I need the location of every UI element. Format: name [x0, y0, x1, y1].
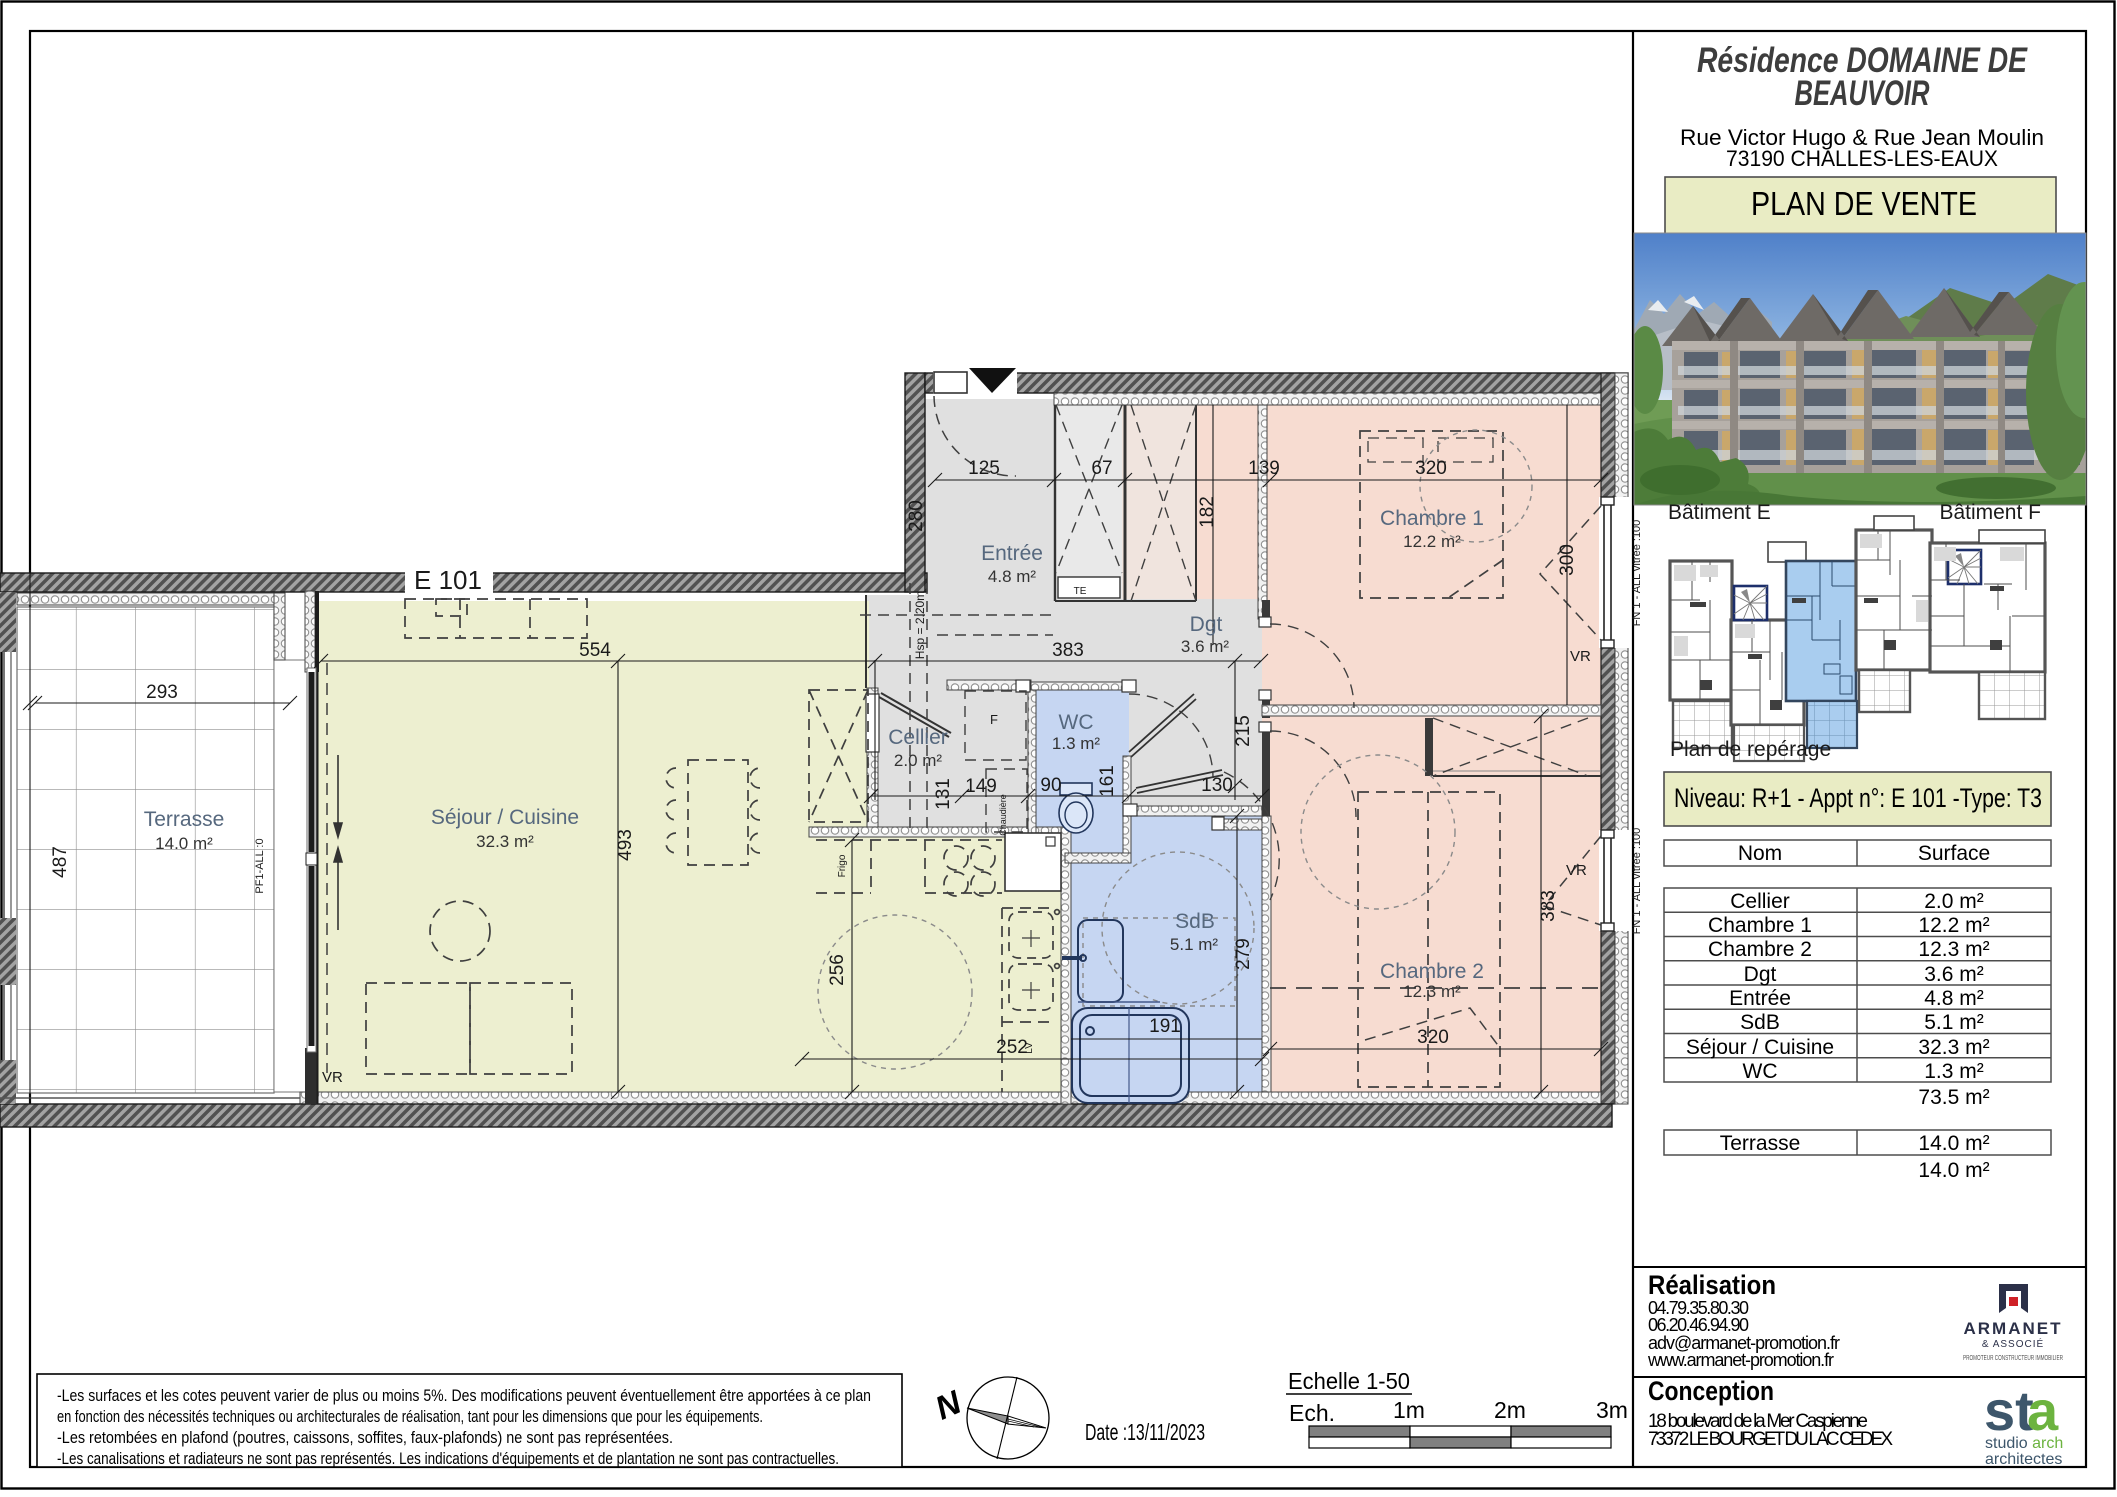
svg-text:architectes: architectes [1985, 1451, 2062, 1468]
svg-text:studio arch: studio arch [1985, 1435, 2063, 1452]
svg-text:WC: WC [1743, 1060, 1778, 1083]
svg-text:161: 161 [1097, 765, 1118, 797]
svg-text:F: F [990, 712, 998, 727]
svg-text:130: 130 [1201, 775, 1233, 796]
svg-text:VR: VR [322, 1069, 343, 1086]
svg-text:300: 300 [1557, 544, 1578, 576]
svg-text:-Les surfaces et les cotes peu: -Les surfaces et les cotes peuvent varie… [57, 1386, 871, 1405]
svg-text:Frigo: Frigo [837, 854, 848, 877]
svg-text:4.8 m²: 4.8 m² [988, 567, 1037, 586]
svg-text:Chambre 1: Chambre 1 [1380, 507, 1484, 530]
svg-text:32.3 m²: 32.3 m² [1918, 1036, 1989, 1059]
svg-text:Cellier: Cellier [1730, 890, 1790, 913]
svg-text:383: 383 [1052, 640, 1084, 661]
svg-text:320: 320 [1415, 458, 1447, 479]
svg-text:12.3 m²: 12.3 m² [1918, 938, 1989, 961]
svg-text:1.3 m²: 1.3 m² [1924, 1060, 1984, 1083]
svg-text:280: 280 [906, 500, 927, 532]
svg-text:VR: VR [1570, 648, 1591, 665]
svg-text:Hsp = 2.20m: Hsp = 2.20m [913, 591, 927, 659]
svg-text:Conception: Conception [1648, 1376, 1774, 1406]
svg-text:14.0 m²: 14.0 m² [1918, 1159, 1989, 1182]
svg-text:73190 CHALLES-LES-EAUX: 73190 CHALLES-LES-EAUX [1726, 146, 1998, 171]
svg-text:Terrasse: Terrasse [1720, 1132, 1801, 1155]
svg-text:VR: VR [1566, 862, 1587, 879]
svg-text:5.1 m²: 5.1 m² [1170, 935, 1219, 954]
svg-text:FN 1 - ALL vitrée :100: FN 1 - ALL vitrée :100 [1631, 828, 1643, 935]
svg-text:554: 554 [579, 640, 611, 661]
svg-text:Entrée: Entrée [981, 542, 1043, 565]
svg-text:Dgt: Dgt [1190, 613, 1223, 636]
svg-text:149: 149 [965, 776, 997, 797]
svg-text:12.2 m²: 12.2 m² [1403, 532, 1461, 551]
svg-text:1.3 m²: 1.3 m² [1052, 734, 1101, 753]
svg-text:493: 493 [615, 829, 636, 861]
svg-text:14.0 m²: 14.0 m² [1918, 1132, 1989, 1155]
svg-text:215: 215 [1233, 715, 1254, 747]
svg-text:67: 67 [1091, 458, 1112, 479]
svg-text:Entrée: Entrée [1729, 987, 1791, 1010]
svg-text:1m: 1m [1393, 1397, 1425, 1423]
svg-text:12.3 m²: 12.3 m² [1403, 982, 1461, 1001]
svg-text:Date :13/11/2023: Date :13/11/2023 [1085, 1419, 1205, 1445]
svg-text:en fonction des nécessités tec: en fonction des nécessités techniques ou… [57, 1407, 763, 1426]
svg-text:Cellier: Cellier [888, 726, 948, 749]
svg-text:Chambre 1: Chambre 1 [1708, 914, 1812, 937]
svg-text:125: 125 [968, 458, 1000, 479]
svg-text:32.3 m²: 32.3 m² [476, 832, 534, 851]
svg-text:LV: LV [1024, 1042, 1035, 1054]
svg-text:2m: 2m [1494, 1397, 1526, 1423]
svg-text:Ech.: Ech. [1289, 1400, 1335, 1426]
svg-text:Dgt: Dgt [1744, 963, 1777, 986]
svg-text:-Les retombées en plafond (pou: -Les retombées en plafond (poutres, cais… [57, 1428, 673, 1447]
svg-text:3m: 3m [1596, 1397, 1628, 1423]
svg-text:Echelle 1-50: Echelle 1-50 [1288, 1368, 1410, 1394]
svg-text:12.2 m²: 12.2 m² [1918, 914, 1989, 937]
svg-text:279: 279 [1233, 938, 1254, 970]
svg-text:PROMOTEUR CONSTRUCTEUR IMMOBIL: PROMOTEUR CONSTRUCTEUR IMMOBILIER [1963, 1355, 2063, 1362]
svg-text:Niveau: R+1 - Appt n°: E 101: Niveau: R+1 - Appt n°: E 101 -Type: T3 [1674, 783, 2042, 813]
svg-text:Plan de repérage: Plan de repérage [1670, 738, 1831, 761]
svg-text:2.0 m²: 2.0 m² [894, 751, 943, 770]
svg-text:320: 320 [1417, 1027, 1449, 1048]
svg-text:Bâtiment F: Bâtiment F [1939, 501, 2041, 524]
svg-text:SdB: SdB [1175, 910, 1215, 933]
svg-text:73372 LE BOURGET DU LAC CEDEX: 73372 LE BOURGET DU LAC CEDEX [1648, 1429, 1893, 1450]
svg-text:N: N [930, 1383, 968, 1427]
svg-text:a: a [2027, 1379, 2059, 1442]
svg-text:Nom: Nom [1738, 842, 1782, 865]
svg-text:5.1 m²: 5.1 m² [1924, 1011, 1984, 1034]
svg-text:www.armanet-promotion.fr: www.armanet-promotion.fr [1647, 1350, 1834, 1370]
svg-text:90: 90 [1040, 775, 1061, 796]
svg-text:Chaudière: Chaudière [998, 794, 1008, 836]
svg-text:191: 191 [1149, 1016, 1181, 1037]
svg-text:73.5 m²: 73.5 m² [1918, 1086, 1989, 1109]
svg-text:Chambre 2: Chambre 2 [1708, 938, 1812, 961]
svg-text:-Les canalisations et radiateu: -Les canalisations et radiateurs ne sont… [57, 1449, 839, 1468]
svg-text:TE: TE [1074, 586, 1087, 597]
svg-text:ARMANET: ARMANET [1964, 1319, 2063, 1338]
svg-text:BEAUVOIR: BEAUVOIR [1795, 74, 1931, 113]
svg-text:2.0 m²: 2.0 m² [1924, 890, 1984, 913]
svg-text:293: 293 [146, 682, 178, 703]
svg-text:383: 383 [1538, 890, 1559, 922]
svg-text:PF1-ALL :0: PF1-ALL :0 [254, 838, 266, 893]
svg-text:Terrasse: Terrasse [144, 808, 225, 831]
svg-text:E 101: E 101 [414, 565, 482, 595]
svg-text:Bâtiment E: Bâtiment E [1668, 501, 1771, 524]
svg-text:4.8 m²: 4.8 m² [1924, 987, 1984, 1010]
svg-text:Surface: Surface [1918, 842, 1990, 865]
svg-text:SdB: SdB [1740, 1011, 1780, 1034]
svg-text:3.6 m²: 3.6 m² [1181, 637, 1230, 656]
svg-text:3.6 m²: 3.6 m² [1924, 963, 1984, 986]
svg-text:131: 131 [933, 778, 954, 810]
svg-text:FN 1 - ALL vitrée :100: FN 1 - ALL vitrée :100 [1631, 520, 1643, 627]
svg-text:139: 139 [1248, 458, 1280, 479]
svg-text:Séjour / Cuisine: Séjour / Cuisine [1686, 1036, 1834, 1059]
svg-text:182: 182 [1197, 496, 1218, 528]
svg-text:487: 487 [50, 846, 71, 878]
svg-text:14.0 m²: 14.0 m² [155, 834, 213, 853]
svg-text:PLAN DE VENTE: PLAN DE VENTE [1751, 185, 1977, 222]
svg-text:WC: WC [1059, 711, 1094, 734]
svg-text:Réalisation: Réalisation [1648, 1270, 1776, 1300]
svg-text:256: 256 [827, 954, 848, 986]
svg-text:& ASSOCIÉ: & ASSOCIÉ [1982, 1337, 2044, 1350]
svg-text:Chambre 2: Chambre 2 [1380, 960, 1484, 983]
svg-text:Séjour / Cuisine: Séjour / Cuisine [431, 806, 579, 829]
svg-text:06.20.46.94.90: 06.20.46.94.90 [1648, 1315, 1749, 1335]
